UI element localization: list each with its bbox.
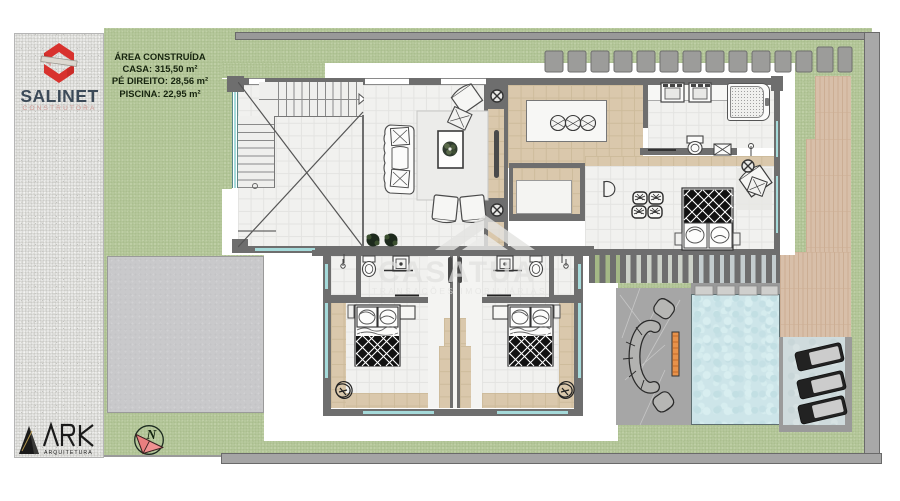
svg-text:ARQUITETURA: ARQUITETURA xyxy=(44,450,93,456)
svg-text:N: N xyxy=(146,427,158,442)
svg-text:TRANSAÇÕES IMOBILIÁRIAS: TRANSAÇÕES IMOBILIÁRIAS xyxy=(372,286,547,296)
svg-text:CASATUA: CASATUA xyxy=(378,256,536,289)
